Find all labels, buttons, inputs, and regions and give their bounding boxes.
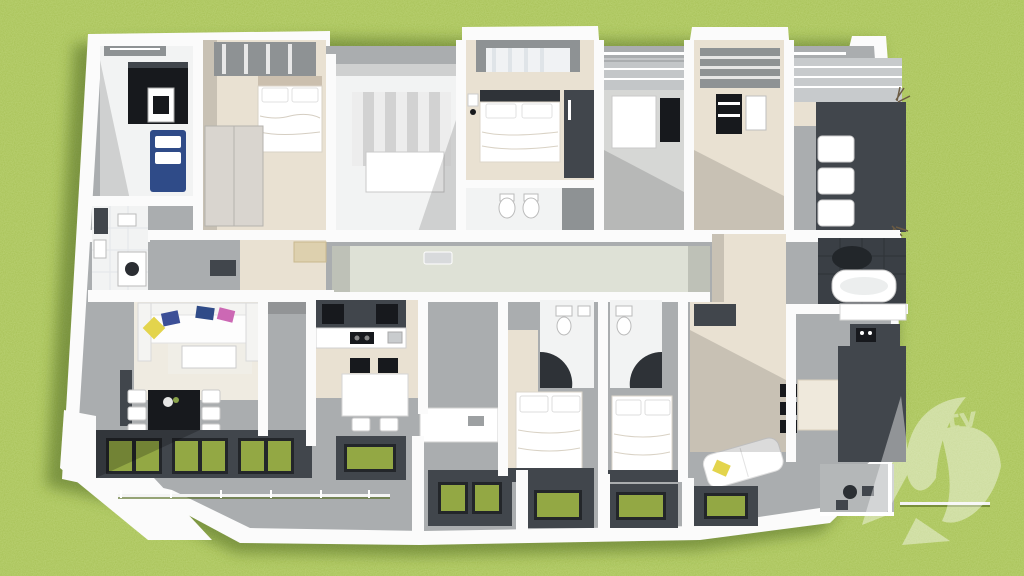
chair xyxy=(202,390,220,403)
bedroom-1 xyxy=(100,46,194,200)
hall-left xyxy=(150,240,326,294)
bathroom-center-1 xyxy=(540,300,594,388)
pillow xyxy=(195,306,214,320)
ceiling-light xyxy=(424,252,452,264)
hall-center xyxy=(264,302,308,428)
toilet xyxy=(557,317,571,335)
tv-unit xyxy=(660,98,680,142)
living-area-right xyxy=(690,302,786,490)
wall xyxy=(326,54,336,236)
skylight xyxy=(790,58,902,102)
wall xyxy=(193,40,203,236)
kitchen-table xyxy=(342,374,408,416)
wall xyxy=(258,296,268,436)
cushion-seat xyxy=(818,136,854,162)
sink xyxy=(578,306,590,316)
toilet xyxy=(617,317,631,335)
stairwell xyxy=(336,64,456,232)
lamp xyxy=(470,109,476,115)
wall xyxy=(412,436,424,532)
wall xyxy=(682,478,694,530)
dining-table xyxy=(148,390,200,436)
building xyxy=(60,26,990,545)
roof-railing xyxy=(786,52,846,55)
window-blind xyxy=(104,46,166,56)
window xyxy=(476,40,580,48)
corridor xyxy=(332,246,710,294)
bath-mat xyxy=(94,208,108,234)
wall xyxy=(306,296,316,446)
sink xyxy=(118,214,136,226)
watermark-text: tv xyxy=(945,402,980,437)
cooktop xyxy=(856,328,876,342)
double-bed xyxy=(480,90,560,162)
chair xyxy=(128,390,146,403)
fridge xyxy=(746,96,766,130)
bathroom-center-2 xyxy=(610,300,662,388)
skylight xyxy=(604,62,684,90)
bedroom-2 xyxy=(203,40,326,232)
cushion-seat xyxy=(818,200,854,226)
wall xyxy=(456,40,466,236)
nightstand xyxy=(468,94,478,106)
stair-landing xyxy=(366,152,444,192)
coffee-table xyxy=(182,346,236,368)
chair xyxy=(202,407,220,420)
hall-right xyxy=(712,234,786,310)
wall xyxy=(684,40,694,236)
chair xyxy=(378,358,398,373)
stool xyxy=(352,418,370,431)
render-canvas: tv xyxy=(0,0,1024,576)
chair xyxy=(836,500,848,510)
daybed-blue xyxy=(150,130,186,192)
bedroom-4 xyxy=(694,40,784,232)
wardrobe xyxy=(694,304,736,326)
wall xyxy=(678,296,688,482)
floor-plan-render: tv xyxy=(0,0,1024,576)
terrace-left xyxy=(96,430,312,478)
wall xyxy=(88,196,196,206)
utility-room xyxy=(600,52,688,232)
wall xyxy=(88,290,334,302)
wall xyxy=(418,296,428,414)
ensuite-bathroom xyxy=(466,188,594,232)
window-blind xyxy=(214,42,316,76)
bed xyxy=(612,396,672,472)
bathroom-left xyxy=(92,206,148,294)
stool xyxy=(380,418,398,431)
window xyxy=(238,438,294,474)
roof-railing xyxy=(600,52,688,55)
wall xyxy=(498,296,508,476)
wall xyxy=(594,40,604,236)
double-bed xyxy=(258,76,322,152)
bed xyxy=(516,392,582,472)
bedroom-3 xyxy=(466,40,594,232)
sink xyxy=(388,332,402,343)
chair xyxy=(350,358,370,373)
wall xyxy=(598,296,608,476)
counter xyxy=(840,304,906,320)
wall xyxy=(786,310,796,462)
cabinet xyxy=(294,242,326,262)
kitchen-island xyxy=(420,408,498,442)
bistro-table xyxy=(843,485,857,499)
bedroom-6 xyxy=(608,396,678,482)
toilet xyxy=(499,198,515,218)
bathroom-right xyxy=(818,238,906,308)
vase xyxy=(163,397,173,407)
wall xyxy=(516,470,528,530)
window xyxy=(172,438,228,474)
wall xyxy=(784,40,794,236)
wall xyxy=(598,474,610,532)
dining-table xyxy=(798,380,840,430)
cooktop xyxy=(350,332,374,344)
cushion-seat xyxy=(818,168,854,194)
chair xyxy=(128,407,146,420)
cabinet xyxy=(612,96,656,148)
bidet xyxy=(523,198,539,218)
